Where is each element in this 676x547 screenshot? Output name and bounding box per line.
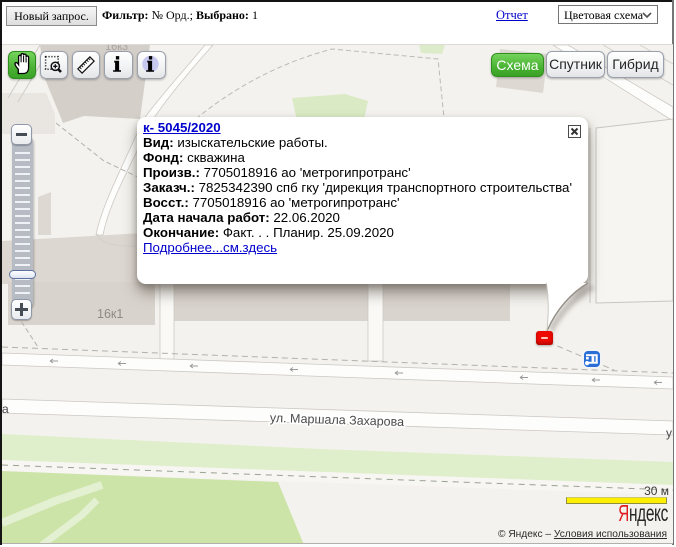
svg-text:у: у (666, 426, 672, 440)
svg-text:16к1: 16к1 (97, 307, 123, 321)
svg-text:а: а (2, 402, 9, 416)
